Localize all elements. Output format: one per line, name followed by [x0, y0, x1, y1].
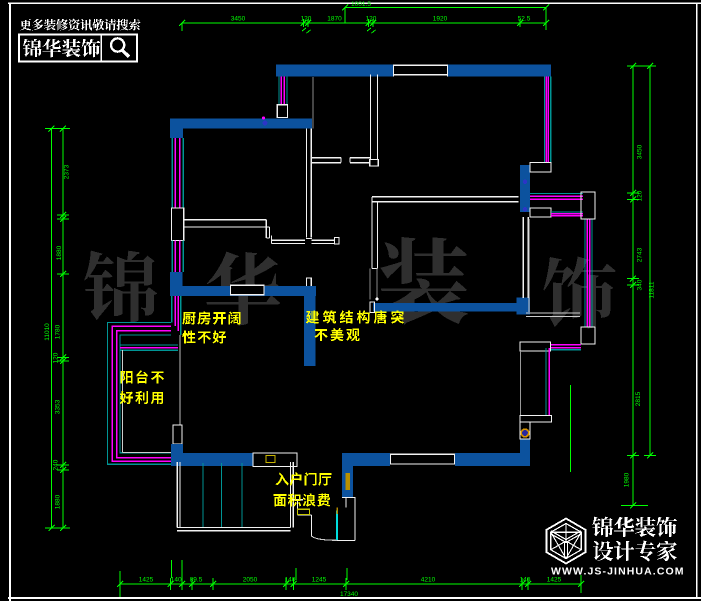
svg-text:11010: 11010 — [44, 323, 51, 341]
svg-text:1880: 1880 — [56, 245, 63, 260]
svg-text:1870: 1870 — [327, 16, 342, 23]
svg-text:52.5: 52.5 — [518, 16, 531, 23]
svg-text:1920: 1920 — [433, 16, 448, 23]
svg-text:WWW.JS-JINHUA.COM: WWW.JS-JINHUA.COM — [551, 566, 685, 578]
svg-text:1880: 1880 — [55, 494, 62, 509]
svg-text:140: 140 — [171, 577, 182, 584]
svg-text:2815: 2815 — [635, 391, 642, 406]
svg-text:3450: 3450 — [231, 16, 246, 23]
svg-text:1780: 1780 — [55, 324, 62, 339]
svg-text:120: 120 — [53, 352, 60, 363]
svg-text:1425: 1425 — [547, 577, 562, 584]
svg-text:2743: 2743 — [637, 247, 644, 262]
svg-text:17340: 17340 — [340, 591, 358, 598]
svg-text:2373: 2373 — [64, 164, 71, 179]
svg-text:1001.5: 1001.5 — [351, 1, 371, 8]
svg-text:89.5: 89.5 — [190, 577, 203, 584]
svg-text:120: 120 — [301, 16, 312, 23]
svg-text:3450: 3450 — [637, 144, 644, 159]
svg-text:11811: 11811 — [649, 281, 656, 298]
svg-text:1425: 1425 — [139, 577, 154, 584]
svg-text:4210: 4210 — [421, 577, 436, 584]
svg-text:1245: 1245 — [312, 577, 327, 584]
svg-text:120: 120 — [637, 190, 644, 201]
svg-text:2050: 2050 — [243, 577, 258, 584]
svg-text:3353: 3353 — [55, 399, 62, 414]
svg-text:240: 240 — [53, 459, 60, 470]
svg-text:140: 140 — [520, 577, 531, 584]
svg-text:120: 120 — [366, 16, 377, 23]
svg-text:340: 340 — [637, 279, 644, 290]
svg-text:140: 140 — [285, 577, 296, 584]
svg-text:1980: 1980 — [624, 472, 631, 487]
